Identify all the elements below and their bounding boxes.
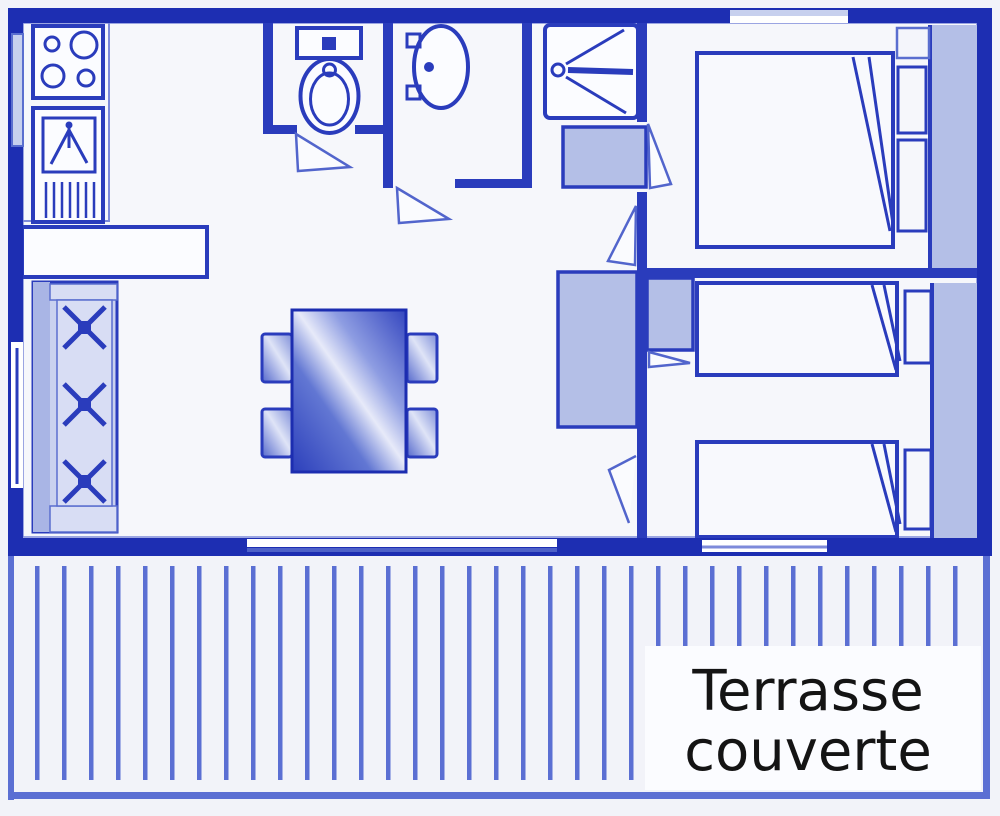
bedroom-1-wardrobe xyxy=(930,25,977,270)
bedroom-1 xyxy=(697,25,977,270)
hall-wardrobe xyxy=(558,272,637,427)
chair-top-left xyxy=(262,334,292,382)
wall-right xyxy=(977,8,992,556)
shower-right-wall xyxy=(637,22,647,122)
bar-counter xyxy=(22,227,207,277)
bedroom-2-closet xyxy=(647,278,693,350)
water-heater xyxy=(563,127,646,187)
terrace-label-line-1: Terrasse xyxy=(691,659,923,724)
window-top-opening xyxy=(730,16,848,23)
washbasin xyxy=(414,26,468,108)
double-bed xyxy=(697,53,893,247)
bedroom-2-wardrobe xyxy=(932,283,977,538)
deck-boards-left xyxy=(26,566,643,780)
floor-plan-drawing: Terrasse couverte xyxy=(0,0,1000,816)
chair-bottom-left xyxy=(262,409,292,457)
washroom-shower-wall xyxy=(522,22,532,188)
wc-bottom-wall-left xyxy=(263,125,297,134)
deck-boards-right xyxy=(643,566,977,646)
covered-terrace: Terrasse couverte xyxy=(8,556,990,800)
wc-left-wall xyxy=(263,22,273,134)
bedroom-divider-wall xyxy=(637,268,978,278)
toilet-flush-button xyxy=(322,37,336,50)
bench-sofa xyxy=(33,282,117,532)
living-bedroom-wall xyxy=(637,192,647,538)
washroom-bottom-wall xyxy=(455,179,532,188)
wc-room xyxy=(297,28,361,133)
terrace-border-left xyxy=(8,556,14,800)
single-bed-2 xyxy=(697,442,897,537)
dining-table xyxy=(292,310,406,472)
patio-door-opening xyxy=(247,539,557,547)
window-left-upper xyxy=(12,34,23,146)
bench-backrest xyxy=(33,282,50,532)
wc-washroom-wall xyxy=(383,22,393,188)
basin-drain xyxy=(424,62,434,72)
terrace-border-right xyxy=(983,556,990,799)
nightstand xyxy=(897,28,929,58)
single-bed-1 xyxy=(697,283,897,375)
floor-plan-page: Terrasse couverte xyxy=(0,0,1000,816)
bench-arm-top xyxy=(50,284,117,300)
drainer-grooves xyxy=(46,182,94,218)
shower-spray-bar xyxy=(568,70,633,72)
chair-top-right xyxy=(407,334,437,382)
bench-arm-bottom xyxy=(50,506,117,532)
terrace-border-bottom xyxy=(8,792,990,799)
terrace-label-line-2: couverte xyxy=(684,719,932,784)
window-top-glaze xyxy=(730,10,848,16)
faucet-dot xyxy=(66,122,73,129)
chair-bottom-right xyxy=(407,409,437,457)
